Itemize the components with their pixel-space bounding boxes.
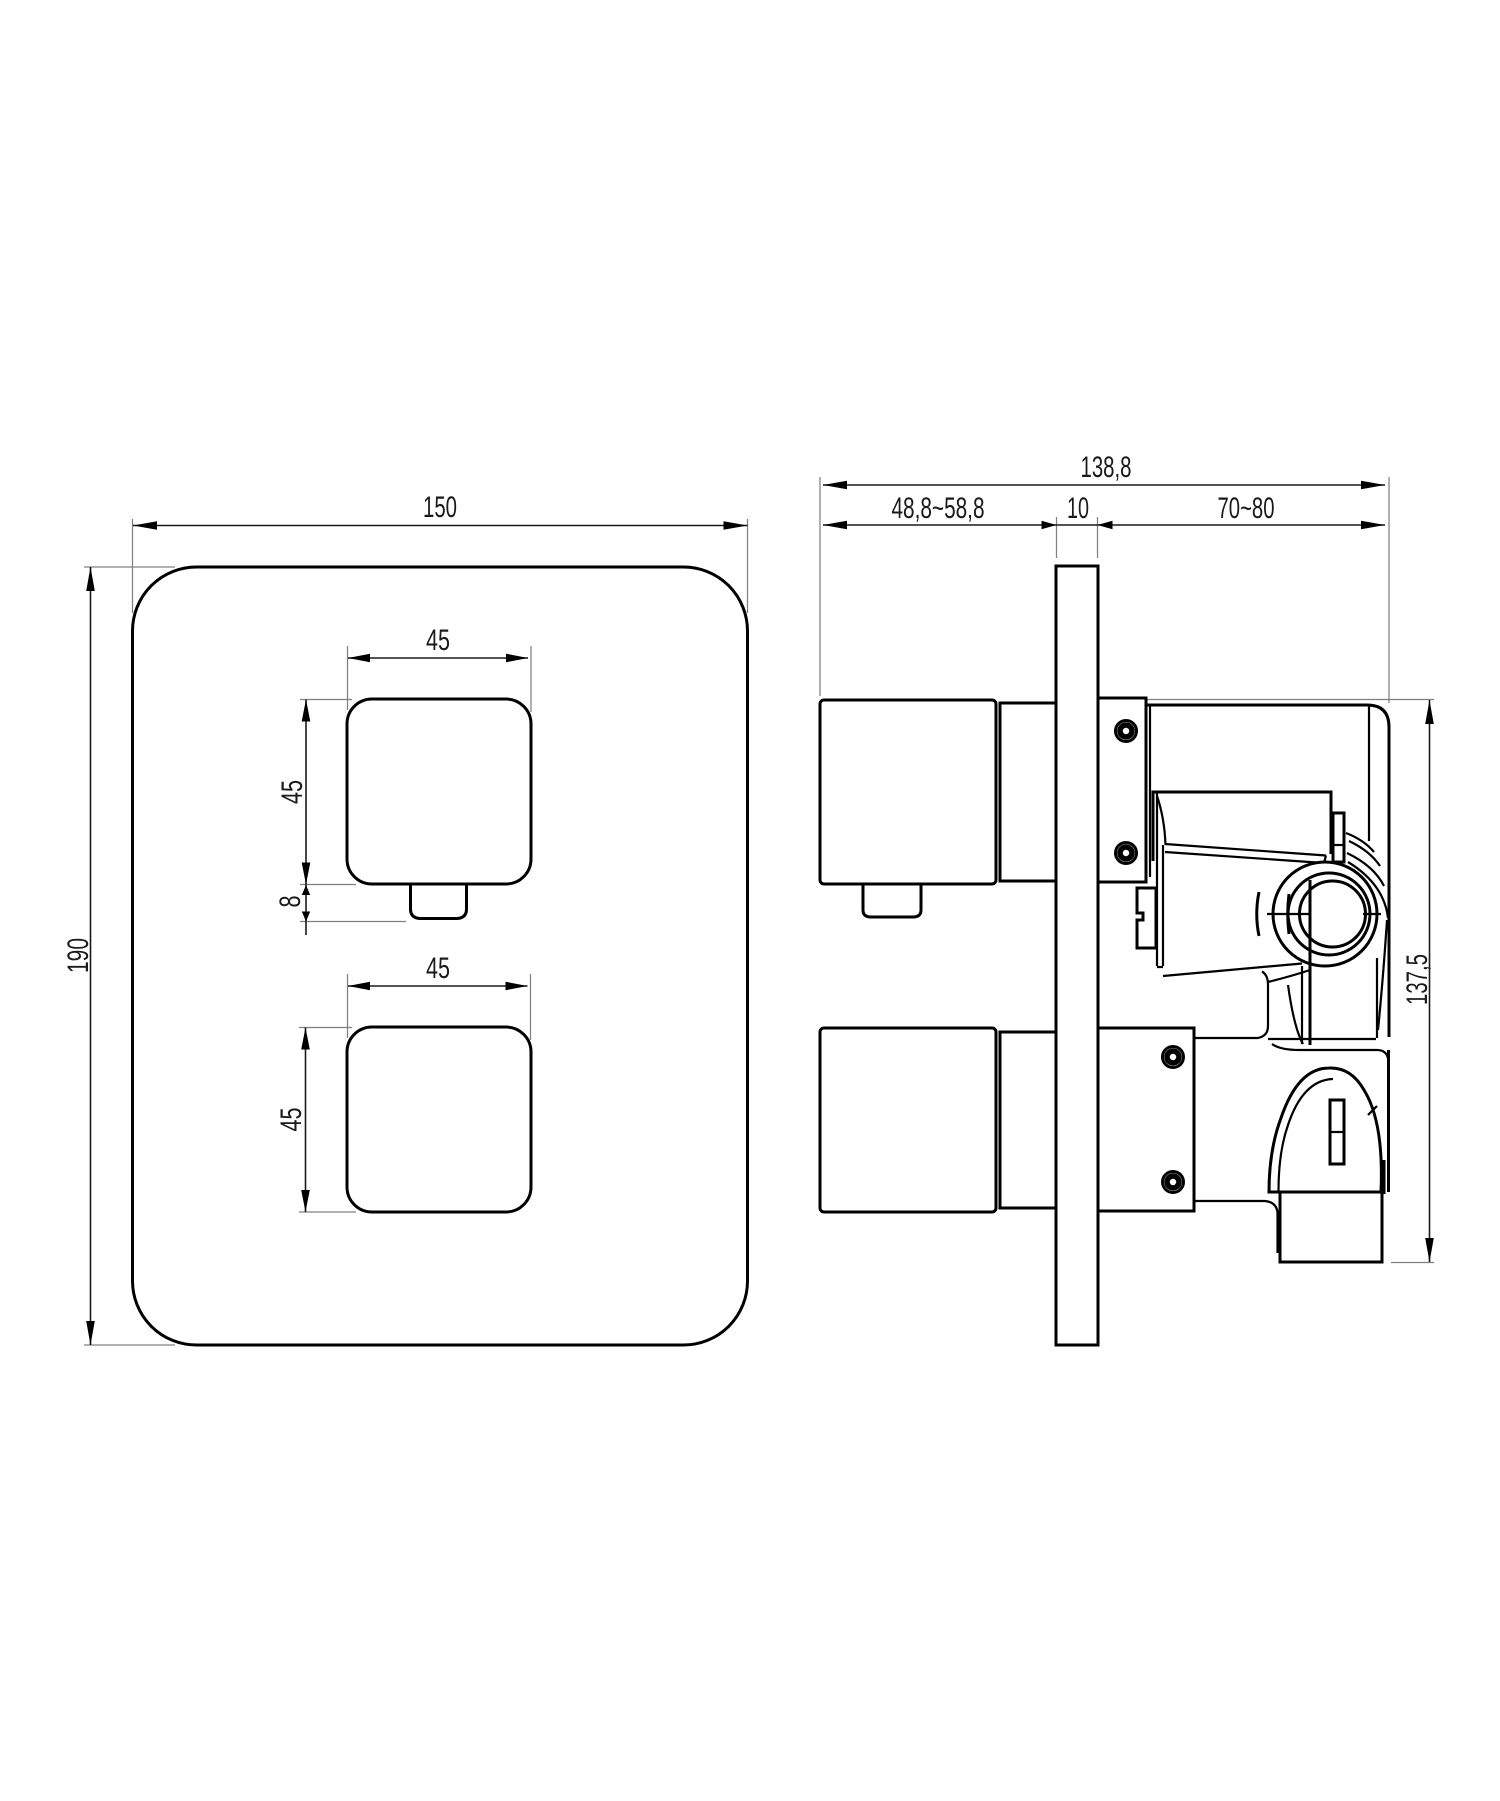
svg-text:45: 45 — [275, 1108, 308, 1132]
svg-text:70~80: 70~80 — [1218, 492, 1275, 525]
svg-text:48,8~58,8: 48,8~58,8 — [892, 492, 985, 525]
svg-text:190: 190 — [62, 938, 95, 973]
svg-text:137,5: 137,5 — [1401, 954, 1434, 1005]
svg-text:138,8: 138,8 — [1081, 451, 1132, 484]
svg-text:10: 10 — [1067, 492, 1089, 525]
svg-text:45: 45 — [426, 952, 450, 985]
svg-text:45: 45 — [276, 780, 309, 804]
svg-text:150: 150 — [423, 491, 457, 524]
svg-text:8: 8 — [274, 896, 307, 908]
svg-text:45: 45 — [426, 624, 450, 657]
